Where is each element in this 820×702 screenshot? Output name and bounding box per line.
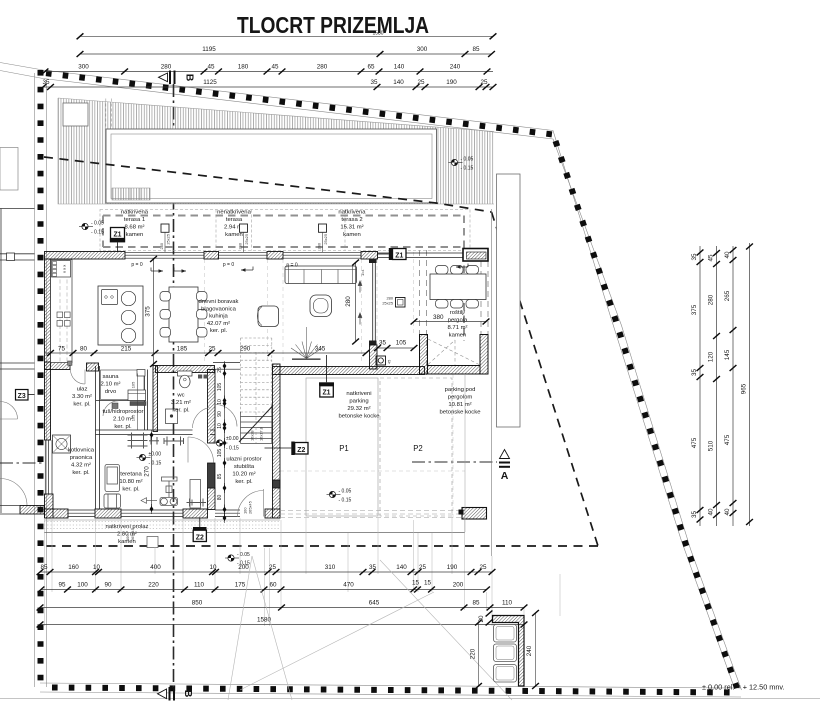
svg-text:B: B bbox=[182, 690, 194, 698]
svg-text:35: 35 bbox=[691, 253, 698, 261]
svg-text:10: 10 bbox=[209, 564, 217, 571]
svg-text:510: 510 bbox=[708, 440, 715, 451]
svg-text:45: 45 bbox=[387, 360, 392, 364]
svg-text:Z1: Z1 bbox=[113, 231, 121, 238]
svg-text:15: 15 bbox=[424, 580, 432, 587]
svg-text:475: 475 bbox=[691, 437, 698, 448]
svg-text:25: 25 bbox=[479, 564, 487, 571]
svg-text:45: 45 bbox=[207, 64, 215, 71]
svg-text:25: 25 bbox=[217, 367, 223, 373]
svg-text:3.30 m²: 3.30 m² bbox=[72, 394, 92, 400]
svg-text:pergola: pergola bbox=[448, 318, 468, 324]
svg-text:35: 35 bbox=[691, 511, 698, 519]
svg-text:25: 25 bbox=[419, 564, 427, 571]
svg-text:1125: 1125 bbox=[203, 79, 217, 86]
svg-text:645: 645 bbox=[369, 600, 380, 607]
svg-text:105: 105 bbox=[131, 382, 136, 389]
svg-text:280: 280 bbox=[159, 242, 164, 249]
svg-text:roštilj/: roštilj/ bbox=[450, 310, 466, 316]
svg-text:470: 470 bbox=[343, 582, 354, 589]
svg-text:kotlovnica: kotlovnica bbox=[68, 448, 95, 454]
svg-text:190: 190 bbox=[447, 564, 458, 571]
svg-text:105: 105 bbox=[217, 383, 223, 392]
svg-text:kamen: kamen bbox=[449, 333, 467, 339]
svg-text:240: 240 bbox=[450, 64, 461, 71]
svg-text:betonske kocke: betonske kocke bbox=[440, 410, 482, 416]
svg-text:475: 475 bbox=[724, 434, 731, 445]
svg-text:1=4: 1=4 bbox=[360, 269, 365, 276]
svg-text:3.21 m²: 3.21 m² bbox=[171, 400, 191, 406]
svg-text:280: 280 bbox=[317, 242, 322, 249]
svg-text:190: 190 bbox=[446, 79, 457, 86]
svg-text:natkrivena: natkrivena bbox=[338, 210, 366, 216]
svg-text:80: 80 bbox=[217, 495, 223, 501]
svg-text:140: 140 bbox=[394, 64, 405, 71]
svg-text:ker. pl.: ker. pl. bbox=[73, 402, 91, 408]
svg-text:90: 90 bbox=[104, 582, 112, 589]
svg-text:35: 35 bbox=[370, 79, 378, 86]
svg-text:175: 175 bbox=[235, 582, 246, 589]
svg-text:ker. pl.: ker. pl. bbox=[210, 328, 228, 334]
svg-text:45: 45 bbox=[708, 254, 715, 262]
svg-text:345: 345 bbox=[315, 346, 326, 353]
svg-text:16x17.8: 16x17.8 bbox=[259, 427, 264, 441]
svg-text:95: 95 bbox=[58, 582, 66, 589]
svg-text:215: 215 bbox=[121, 346, 132, 353]
svg-text:280: 280 bbox=[238, 242, 243, 249]
svg-text:180: 180 bbox=[238, 64, 249, 71]
svg-text:35: 35 bbox=[379, 340, 387, 347]
svg-text:kamen: kamen bbox=[343, 232, 361, 238]
svg-text:200: 200 bbox=[453, 582, 464, 589]
svg-text:natkriveni: natkriveni bbox=[346, 391, 371, 397]
svg-text:375: 375 bbox=[691, 304, 698, 315]
svg-text:8.68 m²: 8.68 m² bbox=[125, 225, 145, 231]
svg-text:drvo: drvo bbox=[105, 389, 117, 395]
svg-text:kamen: kamen bbox=[126, 232, 144, 238]
svg-text:75: 75 bbox=[58, 346, 66, 353]
svg-text:100: 100 bbox=[77, 582, 88, 589]
svg-text:kuhinja: kuhinja bbox=[209, 314, 228, 320]
svg-text:praonica: praonica bbox=[70, 455, 93, 461]
svg-text:betonske kocke: betonske kocke bbox=[339, 414, 381, 420]
svg-text:ker. pl.: ker. pl. bbox=[235, 479, 253, 485]
svg-text:380: 380 bbox=[433, 314, 444, 321]
svg-text:25: 25 bbox=[417, 79, 425, 86]
svg-text:±0.00: ±0.00 bbox=[149, 452, 162, 458]
svg-text:265x45: 265x45 bbox=[130, 528, 135, 541]
svg-text:105: 105 bbox=[131, 415, 136, 422]
svg-text:29.32 m²: 29.32 m² bbox=[347, 406, 370, 412]
svg-text:blagovaonica: blagovaonica bbox=[201, 306, 236, 312]
svg-text:16x28: 16x28 bbox=[250, 430, 255, 441]
svg-text:85: 85 bbox=[40, 564, 48, 571]
svg-text:280: 280 bbox=[161, 64, 172, 71]
svg-text:35: 35 bbox=[42, 79, 50, 86]
svg-text:8.71 m²: 8.71 m² bbox=[448, 325, 468, 331]
svg-text:85: 85 bbox=[472, 46, 480, 53]
svg-text:140: 140 bbox=[396, 564, 407, 571]
svg-text:220: 220 bbox=[148, 582, 159, 589]
svg-text:- 0.05: - 0.05 bbox=[461, 157, 474, 163]
svg-text:p = 0: p = 0 bbox=[223, 262, 234, 268]
svg-text:110: 110 bbox=[502, 600, 513, 607]
svg-text:25: 25 bbox=[269, 564, 277, 571]
svg-text:25x25: 25x25 bbox=[166, 234, 171, 245]
svg-text:terasa 2: terasa 2 bbox=[341, 217, 362, 223]
svg-text:105: 105 bbox=[217, 449, 223, 458]
svg-text:1580: 1580 bbox=[372, 31, 383, 37]
svg-text:80: 80 bbox=[80, 346, 88, 353]
svg-text:nenatkrivena: nenatkrivena bbox=[217, 210, 251, 216]
svg-text:10: 10 bbox=[93, 564, 101, 571]
svg-text:- 0.05: - 0.05 bbox=[91, 221, 104, 227]
svg-text:TLOCRT PRIZEMLJA: TLOCRT PRIZEMLJA bbox=[237, 12, 429, 38]
svg-text:45: 45 bbox=[271, 64, 279, 71]
svg-text:- 0.05: - 0.05 bbox=[339, 489, 352, 495]
svg-text:ker. pl.: ker. pl. bbox=[114, 424, 132, 430]
svg-text:25: 25 bbox=[208, 346, 216, 353]
svg-text:60: 60 bbox=[269, 582, 277, 589]
svg-text:- 0.15: - 0.15 bbox=[339, 498, 352, 504]
svg-text:x x x: x x x bbox=[62, 265, 67, 273]
svg-text:65: 65 bbox=[367, 64, 375, 71]
svg-text:P1: P1 bbox=[339, 444, 349, 453]
svg-text:375: 375 bbox=[145, 306, 152, 317]
svg-text:40: 40 bbox=[724, 251, 731, 259]
svg-text:Z2: Z2 bbox=[297, 447, 305, 454]
svg-text:35: 35 bbox=[369, 564, 377, 571]
svg-text:- 0.15: - 0.15 bbox=[226, 446, 239, 452]
svg-text:220: 220 bbox=[470, 648, 477, 659]
svg-text:310: 310 bbox=[325, 564, 336, 571]
svg-text:265: 265 bbox=[724, 290, 731, 301]
svg-text:35: 35 bbox=[691, 369, 698, 377]
svg-text:parking: parking bbox=[349, 399, 368, 405]
svg-text:90: 90 bbox=[217, 411, 223, 417]
svg-text:85: 85 bbox=[472, 600, 480, 607]
svg-text:dnevni boravak: dnevni boravak bbox=[199, 299, 239, 305]
svg-text:40: 40 bbox=[724, 508, 731, 516]
svg-text:pergolom: pergolom bbox=[448, 395, 473, 401]
svg-text:2.10 m²: 2.10 m² bbox=[101, 382, 121, 388]
svg-text:105: 105 bbox=[396, 340, 407, 347]
svg-text:280: 280 bbox=[345, 296, 352, 307]
svg-text:185: 185 bbox=[177, 346, 188, 353]
svg-text:stubišta: stubišta bbox=[234, 464, 255, 470]
svg-text:- 0.05: - 0.05 bbox=[237, 552, 250, 558]
svg-text:15.31 m²: 15.31 m² bbox=[340, 225, 363, 231]
svg-text:A: A bbox=[501, 470, 509, 482]
svg-text:4.32 m²: 4.32 m² bbox=[71, 463, 91, 469]
svg-text:400: 400 bbox=[150, 564, 161, 571]
svg-text:42.07 m²: 42.07 m² bbox=[207, 321, 230, 327]
svg-text:10: 10 bbox=[217, 423, 223, 429]
svg-text:parking pod: parking pod bbox=[445, 387, 476, 393]
svg-text:ulazni prostor: ulazni prostor bbox=[226, 457, 261, 463]
svg-text:ker. pl.: ker. pl. bbox=[122, 487, 140, 493]
svg-text:1195: 1195 bbox=[202, 46, 216, 53]
svg-text:120: 120 bbox=[708, 351, 715, 362]
svg-text:280: 280 bbox=[317, 64, 328, 71]
svg-text:40: 40 bbox=[708, 508, 715, 516]
svg-text:B: B bbox=[184, 74, 196, 82]
svg-text:Z2: Z2 bbox=[196, 535, 204, 542]
svg-text:25x25: 25x25 bbox=[382, 301, 393, 306]
svg-text:- 0.15: - 0.15 bbox=[461, 166, 474, 172]
svg-text:- 0.15: - 0.15 bbox=[149, 461, 162, 467]
svg-text:ker. pl.: ker. pl. bbox=[172, 408, 190, 414]
svg-text:290: 290 bbox=[240, 346, 251, 353]
svg-text:teretana: teretana bbox=[120, 472, 142, 478]
svg-text:965: 965 bbox=[741, 383, 748, 394]
svg-text:300: 300 bbox=[78, 64, 89, 71]
svg-text:850: 850 bbox=[192, 600, 203, 607]
svg-text:± 0.00 rel. = + 12.50 mnv.: ± 0.00 rel. = + 12.50 mnv. bbox=[702, 683, 785, 692]
svg-text:240: 240 bbox=[526, 645, 533, 656]
svg-text:ulaz: ulaz bbox=[77, 387, 88, 393]
svg-text:15: 15 bbox=[412, 580, 420, 587]
svg-text:270: 270 bbox=[144, 466, 151, 477]
svg-text:natkrivena: natkrivena bbox=[121, 210, 149, 216]
svg-text:25x25: 25x25 bbox=[244, 234, 249, 245]
svg-text:145: 145 bbox=[724, 349, 731, 360]
svg-text:10.20 m²: 10.20 m² bbox=[232, 472, 255, 478]
svg-text:sauna: sauna bbox=[102, 374, 119, 380]
svg-text:110: 110 bbox=[194, 582, 205, 589]
svg-text:10: 10 bbox=[217, 399, 223, 405]
svg-text:terasa 1: terasa 1 bbox=[124, 217, 145, 223]
svg-text:P2: P2 bbox=[413, 444, 423, 453]
svg-text:280: 280 bbox=[708, 294, 715, 305]
svg-text:140: 140 bbox=[393, 79, 404, 86]
svg-text:25: 25 bbox=[480, 79, 488, 86]
svg-text:p = 0: p = 0 bbox=[131, 262, 142, 268]
svg-text:Z3: Z3 bbox=[18, 393, 26, 400]
svg-text:terasa: terasa bbox=[226, 217, 243, 223]
svg-text:Z1: Z1 bbox=[322, 390, 330, 397]
svg-text:Z1: Z1 bbox=[395, 252, 403, 259]
svg-text:25x25: 25x25 bbox=[323, 234, 328, 245]
svg-text:ker. pl.: ker. pl. bbox=[72, 470, 90, 476]
svg-text:kamen: kamen bbox=[225, 232, 243, 238]
svg-text:wc: wc bbox=[176, 393, 184, 399]
svg-text:300: 300 bbox=[417, 46, 428, 53]
svg-text:200: 200 bbox=[238, 564, 249, 571]
svg-text:160: 160 bbox=[68, 564, 79, 571]
svg-text:265x45: 265x45 bbox=[248, 501, 253, 514]
svg-text:p = 0: p = 0 bbox=[286, 263, 297, 269]
svg-text:85: 85 bbox=[217, 474, 223, 480]
svg-text:±0.00: ±0.00 bbox=[226, 436, 239, 442]
svg-text:10.80 m²: 10.80 m² bbox=[119, 479, 142, 485]
svg-text:- 0.15: - 0.15 bbox=[91, 230, 104, 236]
